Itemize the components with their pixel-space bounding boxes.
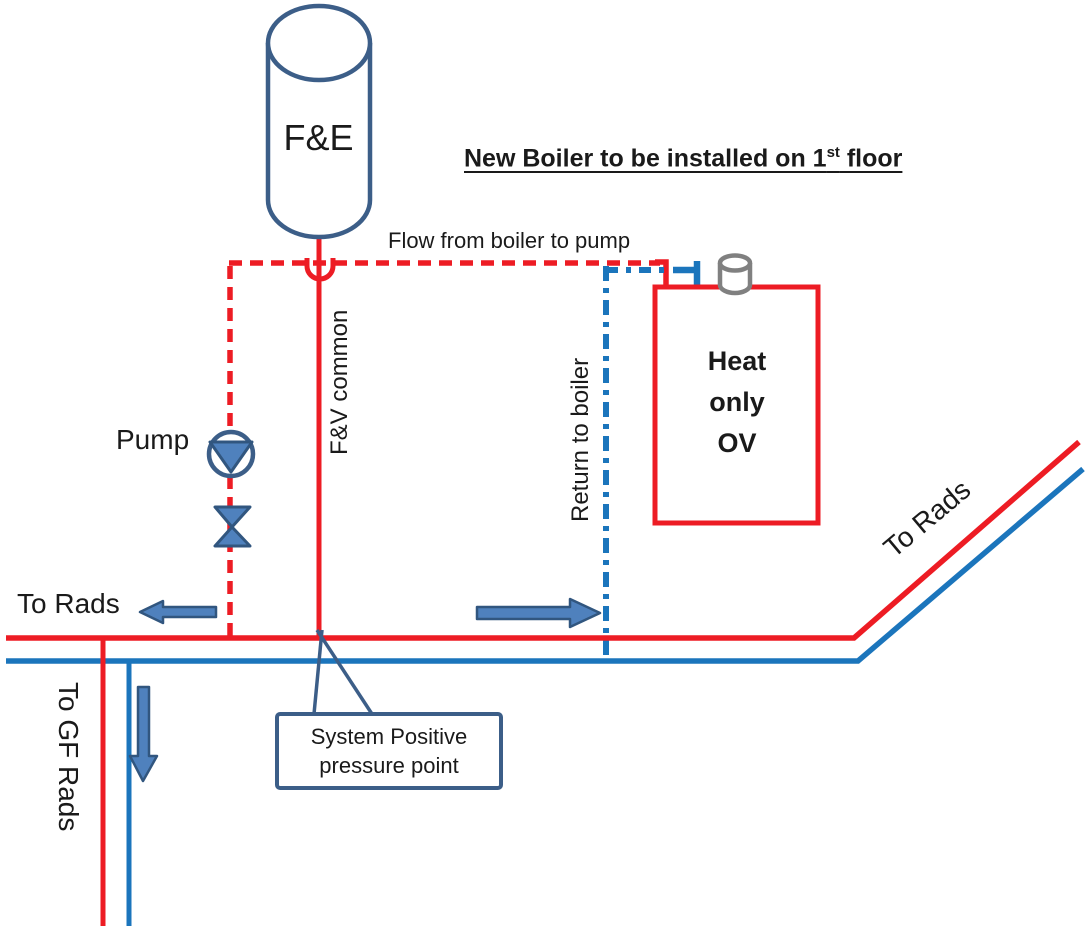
arrow-left-icon (140, 601, 216, 623)
heating-system-diagram: F&E New Boiler to be installed on 1st fl… (0, 0, 1085, 926)
to-rads-left-label: To Rads (17, 588, 120, 620)
to-gf-rads-label: To GF Rads (52, 682, 84, 842)
flow-pipe-label: Flow from boiler to pump (388, 228, 630, 254)
title-text: New Boiler to be installed on 1 (464, 144, 827, 172)
flue-icon (720, 256, 750, 294)
pump-label: Pump (116, 424, 189, 456)
boiler-label-line1: Heat (655, 341, 819, 382)
fe-tank-label: F&E (266, 117, 371, 159)
boiler-label: Heat only OV (655, 341, 819, 464)
title-superscript: st (827, 144, 840, 161)
callout-line1: System Positive (311, 722, 468, 751)
callout-pointer (314, 630, 372, 714)
pipework-svg (0, 0, 1085, 926)
boiler-label-line2: only (655, 382, 819, 423)
page-title: New Boiler to be installed on 1st floor (464, 144, 902, 173)
main-return-line (6, 469, 1083, 661)
pressure-point-callout: System Positive pressure point (275, 712, 503, 790)
valve-icon (215, 507, 250, 546)
arrow-down-icon (130, 687, 157, 781)
pump-icon (209, 432, 253, 476)
return-to-boiler-label: Return to boiler (567, 342, 595, 522)
callout-line2: pressure point (319, 751, 458, 780)
boiler-label-line3: OV (655, 423, 819, 464)
title-suffix: floor (840, 144, 903, 172)
fv-common-label: F&V common (326, 305, 354, 455)
arrow-right-icon (477, 599, 600, 627)
